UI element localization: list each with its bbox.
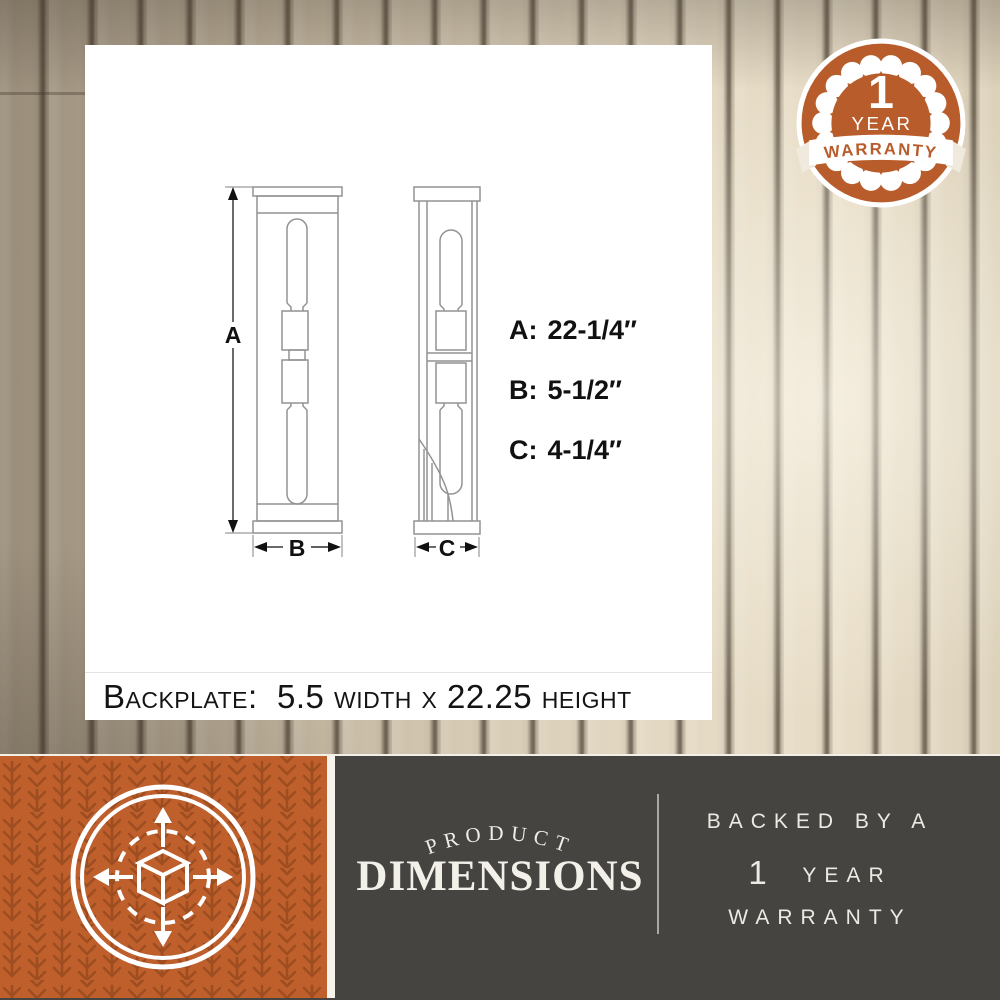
marker-b: B (289, 535, 306, 561)
marker-a: A (225, 322, 242, 348)
one-year-line: 1 YEAR (680, 854, 960, 892)
backplate-note-strip: Backplate: 5.5 width x 22.25 height (85, 672, 712, 720)
dimension-value-c: C:4-1/4″ (509, 435, 622, 466)
dimension-value-b: B:5-1/2″ (509, 375, 622, 406)
dimension-b: B (253, 535, 342, 561)
year-number: 1 (748, 854, 774, 891)
footer-title-block: PRODUCT DIMENSIONS (335, 756, 665, 1000)
dimension-a: A (225, 187, 254, 533)
warranty-seal-icon: 1 YEAR WARRANTY (795, 37, 967, 209)
year-word: YEAR (802, 864, 891, 887)
dim-b-value: 5-1/2″ (548, 375, 622, 405)
dimension-value-a: A:22-1/4″ (509, 315, 637, 346)
backplate-note: Backplate: 5.5 width x 22.25 height (85, 678, 632, 716)
backed-by-line: BACKED BY A (680, 810, 960, 834)
dimension-c: C (415, 535, 479, 561)
warranty-badge: 1 YEAR WARRANTY (795, 37, 967, 209)
product-dimensions-infographic: A B C (0, 0, 1000, 1000)
side-view (414, 187, 480, 534)
footer-divider-gap (327, 756, 335, 998)
badge-year-label: YEAR (851, 113, 912, 134)
warranty-word: WARRANTY (680, 906, 960, 930)
dim-c-label: C: (509, 435, 538, 465)
drawing-panel: A B C (85, 45, 712, 720)
marker-c: C (439, 535, 456, 561)
front-view (253, 187, 342, 533)
dim-a-value: 22-1/4″ (548, 315, 638, 345)
footer-vertical-rule (657, 794, 659, 934)
footer-dimensions-title: DIMENSIONS (340, 852, 660, 901)
dim-b-label: B: (509, 375, 538, 405)
dim-a-label: A: (509, 315, 538, 345)
wood-plank-seam (0, 92, 86, 95)
3d-dimensions-cube-icon (0, 756, 327, 998)
badge-number: 1 (868, 66, 894, 118)
footer-icon-tile (0, 756, 327, 998)
dim-c-value: 4-1/4″ (548, 435, 622, 465)
footer-warranty-block: BACKED BY A 1 YEAR WARRANTY (680, 754, 960, 998)
